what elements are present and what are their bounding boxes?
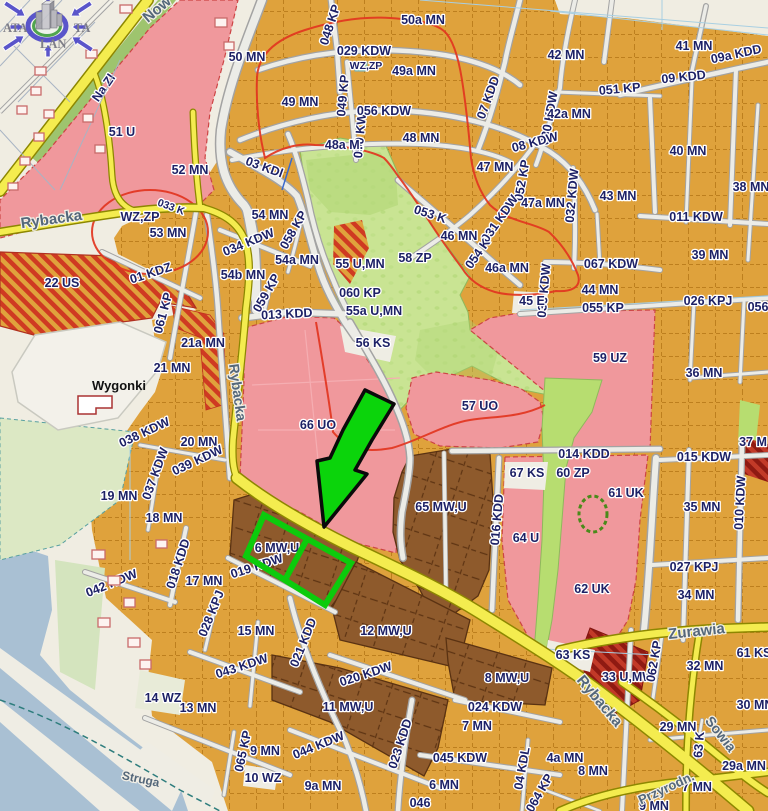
svg-text:35 MN: 35 MN xyxy=(684,500,721,514)
svg-text:ATA: ATA xyxy=(3,21,28,35)
svg-text:58 ZP: 58 ZP xyxy=(398,251,431,265)
svg-text:67 KS: 67 KS xyxy=(510,466,545,480)
svg-text:49 MN: 49 MN xyxy=(282,95,319,109)
svg-text:027 KPJ: 027 KPJ xyxy=(670,560,719,574)
svg-text:11 MW,U: 11 MW,U xyxy=(323,700,374,714)
svg-text:46 MN: 46 MN xyxy=(441,229,478,243)
svg-text:17 MN: 17 MN xyxy=(186,574,223,588)
svg-text:011 KDW: 011 KDW xyxy=(669,210,723,224)
svg-text:8 MN: 8 MN xyxy=(578,764,608,778)
svg-text:59 UZ: 59 UZ xyxy=(593,351,627,365)
svg-text:54a MN: 54a MN xyxy=(275,253,319,267)
svg-text:6 MN: 6 MN xyxy=(429,778,459,792)
svg-text:21a MN: 21a MN xyxy=(181,336,225,350)
svg-text:10 WZ: 10 WZ xyxy=(245,771,282,785)
svg-text:50a MN: 50a MN xyxy=(401,13,445,27)
svg-text:57 UO: 57 UO xyxy=(462,399,498,413)
svg-text:12 MW,U: 12 MW,U xyxy=(360,624,411,638)
svg-text:056 KDW: 056 KDW xyxy=(357,104,411,118)
svg-text:LAN: LAN xyxy=(40,37,66,51)
svg-text:48a M.: 48a M. xyxy=(325,138,363,152)
svg-text:55a U,MN: 55a U,MN xyxy=(346,304,402,318)
svg-text:18 MN: 18 MN xyxy=(146,511,183,525)
svg-text:024 KDW: 024 KDW xyxy=(468,700,522,714)
svg-text:060 KP: 060 KP xyxy=(339,286,381,300)
svg-text:055 KP: 055 KP xyxy=(582,301,624,315)
svg-text:39 MN: 39 MN xyxy=(692,248,729,262)
svg-text:44 MN: 44 MN xyxy=(582,283,619,297)
svg-text:45 E: 45 E xyxy=(519,294,545,308)
svg-text:46a MN: 46a MN xyxy=(485,261,529,275)
svg-text:13 MN: 13 MN xyxy=(180,701,217,715)
svg-text:54 MN: 54 MN xyxy=(252,208,289,222)
svg-text:8 MW,U: 8 MW,U xyxy=(485,671,529,685)
svg-text:53 MN: 53 MN xyxy=(150,226,187,240)
svg-text:54b MN: 54b MN xyxy=(221,268,265,282)
svg-text:046: 046 xyxy=(410,796,431,810)
svg-text:34 MN: 34 MN xyxy=(678,588,715,602)
svg-text:50 MN: 50 MN xyxy=(229,50,266,64)
svg-text:29 MN: 29 MN xyxy=(660,720,697,734)
svg-text:067 KDW: 067 KDW xyxy=(584,257,638,271)
svg-text:62 UK: 62 UK xyxy=(574,582,609,596)
svg-text:30 MN: 30 MN xyxy=(737,698,768,712)
svg-text:52 MN: 52 MN xyxy=(172,163,209,177)
svg-text:19 MN: 19 MN xyxy=(101,489,138,503)
svg-text:64 U: 64 U xyxy=(513,531,539,545)
svg-text:48 MN: 48 MN xyxy=(403,131,440,145)
svg-text:47 MN: 47 MN xyxy=(477,160,514,174)
svg-text:61 UK: 61 UK xyxy=(608,486,643,500)
svg-text:63 K: 63 K xyxy=(691,731,707,759)
svg-text:36 MN: 36 MN xyxy=(686,366,723,380)
svg-text:41 MN: 41 MN xyxy=(676,39,713,53)
svg-text:65 MW,U: 65 MW,U xyxy=(415,500,466,514)
svg-text:WZ,ZP: WZ,ZP xyxy=(350,60,383,72)
svg-text:014 KDD: 014 KDD xyxy=(558,447,609,461)
svg-text:015 KDW: 015 KDW xyxy=(677,450,731,464)
svg-text:60 ZP: 60 ZP xyxy=(556,466,589,480)
svg-text:51 U: 51 U xyxy=(109,125,135,139)
svg-text:49a MN: 49a MN xyxy=(392,64,436,78)
svg-text:029 KDW: 029 KDW xyxy=(337,44,391,58)
svg-text:21 MN: 21 MN xyxy=(154,361,191,375)
svg-text:61 KS: 61 KS xyxy=(737,646,768,660)
svg-text:010 KDW: 010 KDW xyxy=(732,475,749,530)
svg-text:29a MN: 29a MN xyxy=(722,759,766,773)
svg-text:14 WZ: 14 WZ xyxy=(145,691,182,705)
svg-text:40 MN: 40 MN xyxy=(670,144,707,158)
svg-text:37 M: 37 M xyxy=(739,435,767,449)
svg-text:38 MN: 38 MN xyxy=(733,180,768,194)
svg-text:4a MN: 4a MN xyxy=(547,751,584,765)
svg-text:55 U,MN: 55 U,MN xyxy=(335,257,384,271)
svg-text:22 US: 22 US xyxy=(45,276,80,290)
svg-text:WZ,ZP: WZ,ZP xyxy=(121,210,160,224)
svg-text:66 UO: 66 UO xyxy=(300,418,336,432)
svg-text:013 KDD: 013 KDD xyxy=(261,306,313,323)
svg-text:43 MN: 43 MN xyxy=(600,189,637,203)
svg-text:9 MN: 9 MN xyxy=(250,744,280,758)
svg-text:32 MN: 32 MN xyxy=(687,659,724,673)
svg-text:TA: TA xyxy=(74,21,90,35)
svg-text:9a MN: 9a MN xyxy=(305,779,342,793)
svg-text:7 MN: 7 MN xyxy=(462,719,492,733)
svg-text:15 MN: 15 MN xyxy=(238,624,275,638)
svg-text:63 KS: 63 KS xyxy=(556,648,591,662)
svg-text:045 KDW: 045 KDW xyxy=(433,751,487,765)
svg-text:Wygonki: Wygonki xyxy=(92,378,146,393)
svg-text:42 MN: 42 MN xyxy=(548,48,585,62)
svg-text:47a MN: 47a MN xyxy=(521,196,565,210)
svg-text:056: 056 xyxy=(748,300,768,314)
svg-text:026 KPJ: 026 KPJ xyxy=(684,294,733,308)
svg-text:42a MN: 42a MN xyxy=(547,107,591,121)
svg-text:56 KS: 56 KS xyxy=(356,336,391,350)
